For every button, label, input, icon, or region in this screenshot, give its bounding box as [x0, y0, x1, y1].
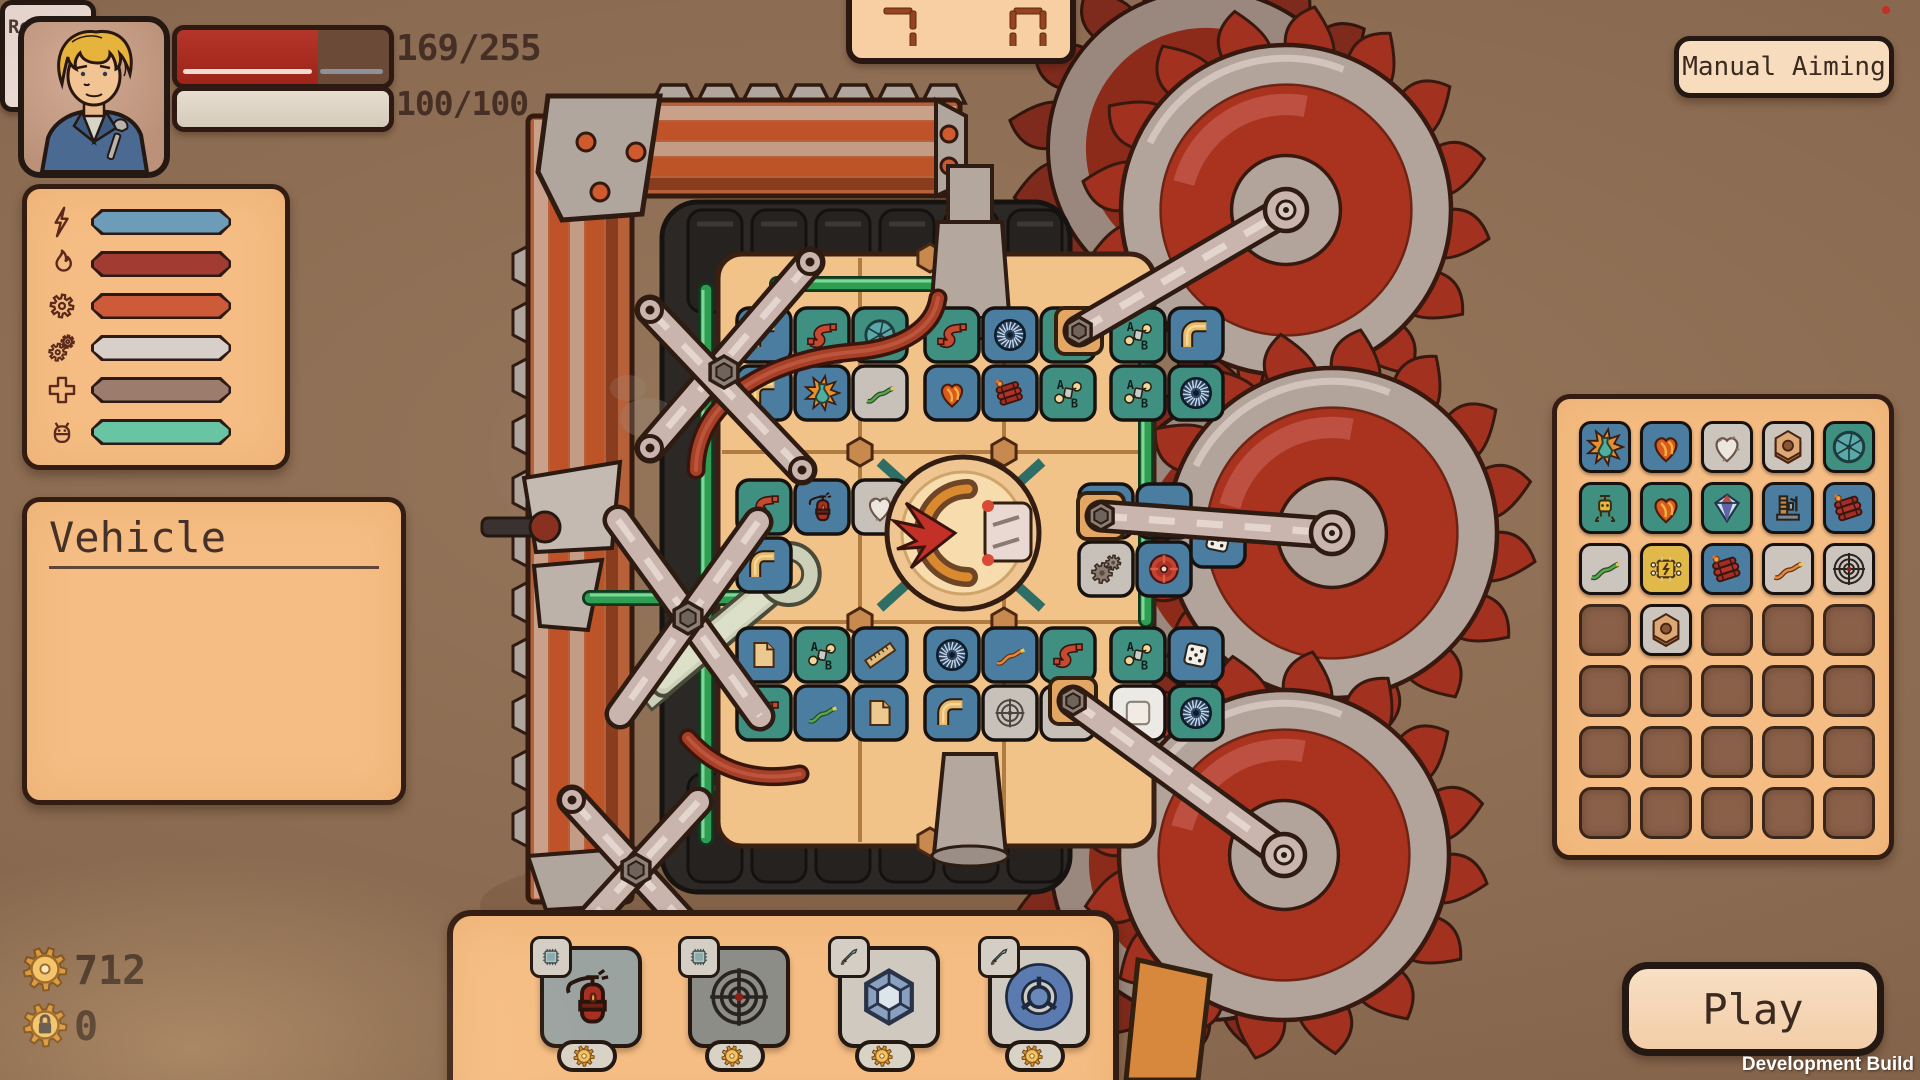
manual-aiming-label: Manual Aiming — [1682, 52, 1886, 82]
stat-row-bot — [41, 413, 271, 451]
inventory-slot-empty[interactable] — [1823, 665, 1875, 717]
currency-locked: 0 — [22, 1002, 98, 1052]
inventory-slot-empty[interactable] — [1701, 787, 1753, 839]
cross-icon — [45, 373, 79, 407]
stat-badge — [91, 293, 231, 319]
explosion-icon — [1585, 427, 1625, 467]
component-tile-wheel[interactable] — [1137, 542, 1191, 596]
inventory-item-nut[interactable] — [1762, 421, 1814, 473]
health-bar — [172, 25, 394, 89]
inventory-item-nut[interactable] — [1640, 604, 1692, 656]
game-screen: ABABABABABAB 169/255 100/100 Manual Aimi… — [0, 0, 1920, 1080]
inventory-item-heart[interactable] — [1701, 421, 1753, 473]
component-tile-wiregreen[interactable] — [795, 686, 849, 740]
vehicle-panel-title: Vehicle — [49, 516, 379, 560]
locked-coin-icon — [22, 1002, 68, 1052]
vehicle-stat-row — [49, 610, 379, 643]
component-tile-dice[interactable] — [1169, 628, 1223, 682]
stat-badge — [91, 251, 231, 277]
inventory-slot-empty[interactable] — [1823, 787, 1875, 839]
coin-icon — [871, 1045, 893, 1067]
chipbadge-icon — [538, 944, 564, 970]
locked-coin-amount: 0 — [74, 1004, 98, 1050]
inventory-slot-empty[interactable] — [1579, 604, 1631, 656]
inventory-slot-empty[interactable] — [1579, 726, 1631, 778]
gear-coin-icon — [22, 946, 68, 996]
coin-icon — [1021, 1045, 1043, 1067]
component-tile-explosion[interactable] — [795, 366, 849, 420]
nut-icon — [1768, 427, 1808, 467]
component-tile-ab[interactable]: AB — [1041, 366, 1095, 420]
fireheart-icon — [1646, 427, 1686, 467]
inventory-item-dynamite[interactable] — [1701, 543, 1753, 595]
bot-icon — [41, 415, 83, 449]
vehicle-stat-row — [49, 643, 379, 676]
svg-text:B: B — [825, 658, 832, 672]
inventory-slot-empty[interactable] — [1823, 726, 1875, 778]
lightning-icon — [41, 205, 83, 239]
inventory-slot-empty[interactable] — [1701, 665, 1753, 717]
svg-text:A: A — [1127, 640, 1135, 654]
svg-text:B: B — [1141, 338, 1148, 352]
chip-badge — [530, 936, 572, 978]
sword-badge — [828, 936, 870, 978]
mud-flap — [1126, 960, 1210, 1080]
inventory-slot-empty[interactable] — [1823, 604, 1875, 656]
component-tile-fan[interactable] — [983, 308, 1037, 362]
svg-text:B: B — [1141, 396, 1148, 410]
component-tile-paper[interactable] — [853, 686, 907, 740]
seven-segment-display — [852, 0, 1058, 46]
chipbadge-icon — [686, 944, 712, 970]
shutter-icon — [1829, 427, 1869, 467]
shop-card-extinguisher[interactable] — [540, 946, 634, 1072]
wiregreen-icon — [1585, 549, 1625, 589]
cross-icon — [41, 373, 83, 407]
flame-icon — [45, 247, 79, 281]
play-label: Play — [1702, 985, 1803, 1034]
shield-value: 100/100 — [396, 84, 528, 123]
stat-badge — [91, 335, 231, 361]
currency-gears: 712 — [22, 946, 146, 996]
health-value: 169/255 — [396, 28, 541, 69]
inventory-slot-empty[interactable] — [1579, 787, 1631, 839]
stat-row-mechanisch — [41, 329, 271, 367]
component-tile-ruler[interactable] — [853, 628, 907, 682]
stat-badge — [91, 377, 231, 403]
gears-icon — [41, 331, 83, 365]
coin-icon — [22, 946, 68, 992]
robot-icon — [1585, 488, 1625, 528]
fireheart-icon — [1646, 488, 1686, 528]
stat-row-physikalisch — [41, 287, 271, 325]
bot-icon — [45, 415, 79, 449]
stat-row-elementar — [41, 245, 271, 283]
inventory-item-fireheart[interactable] — [1640, 482, 1692, 534]
dynamite-icon — [1829, 488, 1869, 528]
component-tile-wiregreen[interactable] — [853, 366, 907, 420]
vehicle-stat-row — [49, 775, 379, 808]
svg-text:B: B — [1141, 658, 1148, 672]
coinlock-icon — [22, 1002, 68, 1048]
component-tile-target[interactable] — [983, 686, 1037, 740]
chip-badge — [678, 936, 720, 978]
component-tile-fan[interactable] — [1169, 686, 1223, 740]
inventory-slot-empty[interactable] — [1762, 726, 1814, 778]
gear-coin-amount: 712 — [74, 948, 146, 994]
nut-icon — [1646, 610, 1686, 650]
shield-bar — [172, 86, 394, 132]
component-tile-pipe[interactable] — [1169, 308, 1223, 362]
pilot-cockpit[interactable] — [887, 457, 1039, 609]
portrait-illustration — [24, 22, 164, 172]
stat-badge — [91, 209, 231, 235]
coin-icon — [721, 1045, 743, 1067]
inventory-slot-empty[interactable] — [1640, 665, 1692, 717]
sword-badge — [978, 936, 1020, 978]
inventory-panel — [1552, 394, 1894, 860]
chip-icon — [1646, 549, 1686, 589]
inventory-item-crosshair[interactable] — [1823, 543, 1875, 595]
vehicle-stat-row — [49, 577, 379, 610]
wireorange-icon — [1768, 549, 1808, 589]
inventory-slot-empty[interactable] — [1640, 787, 1692, 839]
inventory-slot-empty[interactable] — [1701, 726, 1753, 778]
inventory-slot-empty[interactable] — [1762, 665, 1814, 717]
vehicle-stat-row — [49, 742, 379, 775]
machine-icon — [1768, 488, 1808, 528]
inventory-item-wireorange[interactable] — [1762, 543, 1814, 595]
flame-icon — [41, 247, 83, 281]
component-tile-fireheart[interactable] — [925, 366, 979, 420]
svg-text:A: A — [811, 640, 819, 654]
component-tile-extinguisher[interactable] — [795, 480, 849, 534]
inventory-item-fireheart[interactable] — [1640, 421, 1692, 473]
gears-icon — [45, 331, 79, 365]
inventory-item-machine[interactable] — [1762, 482, 1814, 534]
inventory-slot-empty[interactable] — [1762, 787, 1814, 839]
notification-dot — [1882, 6, 1890, 14]
component-tile-dynamite[interactable] — [983, 366, 1037, 420]
heart-icon — [1707, 427, 1747, 467]
vehicle-stat-row — [49, 709, 379, 742]
component-tile-ab[interactable]: AB — [1111, 366, 1165, 420]
gear-icon — [41, 289, 83, 323]
coin-icon — [573, 1045, 595, 1067]
diamond-icon — [1707, 488, 1747, 528]
inventory-slot-empty[interactable] — [1640, 726, 1692, 778]
component-tile-wireorange[interactable] — [983, 628, 1037, 682]
stat-row-defensiv — [41, 371, 271, 409]
shop-card-gem[interactable] — [838, 946, 932, 1072]
gear-icon — [45, 289, 79, 323]
inventory-item-explosion[interactable] — [1579, 421, 1631, 473]
health-bar-shine — [183, 69, 312, 74]
inventory-slot-empty[interactable] — [1701, 604, 1753, 656]
price-tag — [557, 1040, 617, 1072]
svg-text:B: B — [1071, 396, 1078, 410]
divider — [49, 566, 379, 569]
crosshair-icon — [1829, 549, 1869, 589]
stat-badge — [91, 419, 231, 445]
svg-text:A: A — [1057, 378, 1065, 392]
svg-text:A: A — [1127, 320, 1135, 334]
vehicle-stat-row — [49, 676, 379, 709]
price-tag — [705, 1040, 765, 1072]
exhaust-funnel-bottom — [932, 754, 1008, 866]
price-tag — [855, 1040, 915, 1072]
lightning-icon — [45, 205, 79, 239]
inventory-item-dynamite[interactable] — [1823, 482, 1875, 534]
price-tag — [1005, 1040, 1065, 1072]
inventory-slot-empty[interactable] — [1762, 604, 1814, 656]
component-tile-gearsgray[interactable] — [1079, 542, 1133, 596]
component-tile-fan[interactable] — [1169, 366, 1223, 420]
component-tile-ab[interactable]: AB — [1111, 628, 1165, 682]
inventory-item-shutter[interactable] — [1823, 421, 1875, 473]
svg-text:A: A — [1127, 378, 1135, 392]
component-tile-fan[interactable] — [925, 628, 979, 682]
manual-aiming-button[interactable]: Manual Aiming — [1674, 36, 1894, 98]
dev-build-label: Development Build — [1742, 1054, 1914, 1076]
score-counter — [846, 0, 1076, 64]
inventory-item-diamond[interactable] — [1701, 482, 1753, 534]
inventory-item-wiregreen[interactable] — [1579, 543, 1631, 595]
inventory-item-chip[interactable] — [1640, 543, 1692, 595]
inventory-item-robot[interactable] — [1579, 482, 1631, 534]
sword-icon — [836, 944, 862, 970]
component-tile-ab[interactable]: AB — [795, 628, 849, 682]
shop-card-crosshair[interactable] — [688, 946, 782, 1072]
component-tile-spipe[interactable] — [1041, 628, 1095, 682]
stat-row-elektrisch — [41, 203, 271, 241]
play-button[interactable]: Play — [1622, 962, 1884, 1056]
dynamite-icon — [1707, 549, 1747, 589]
vehicle-stats-panel: Vehicle — [22, 497, 406, 805]
component-tile-pipe[interactable] — [925, 686, 979, 740]
shop-card-ring[interactable] — [988, 946, 1082, 1072]
inventory-slot-empty[interactable] — [1579, 665, 1631, 717]
damage-stats-panel — [22, 184, 290, 470]
sword-icon — [986, 944, 1012, 970]
avatar — [18, 16, 170, 178]
